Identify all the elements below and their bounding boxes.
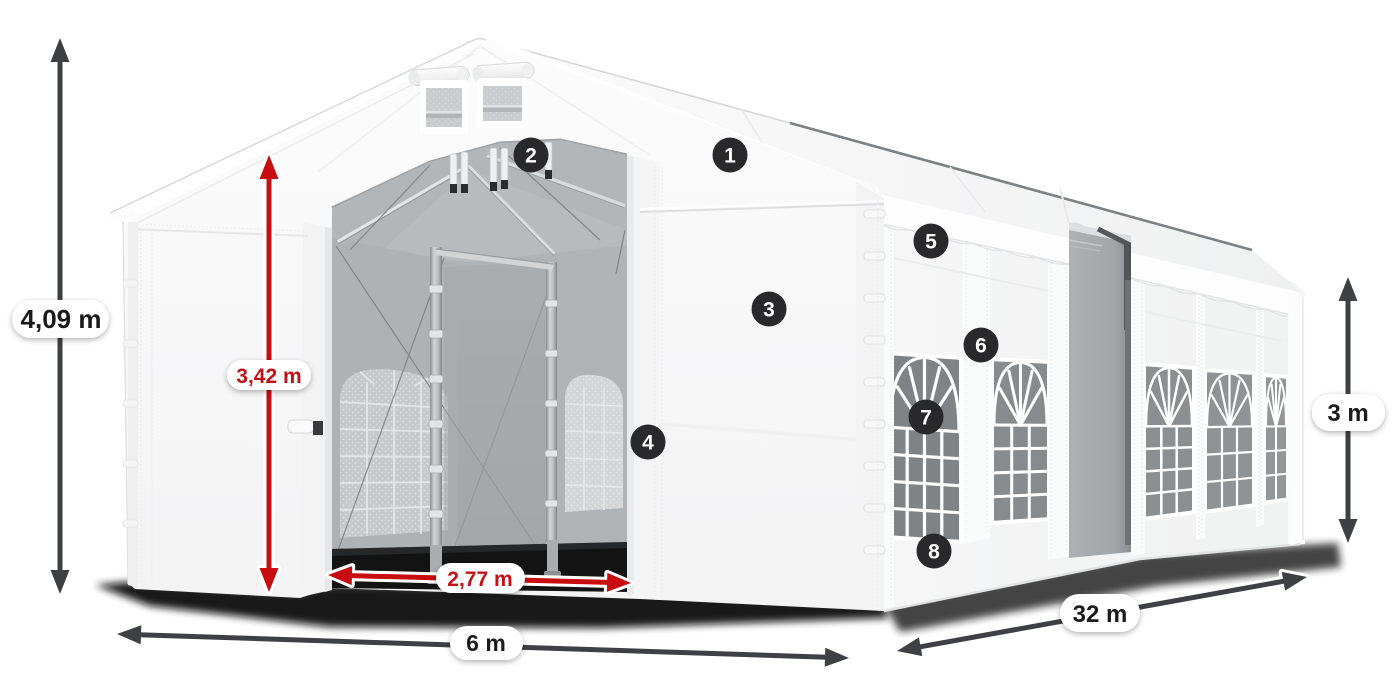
svg-text:3,42 m: 3,42 m <box>236 365 301 388</box>
svg-text:1: 1 <box>724 145 736 168</box>
svg-text:4: 4 <box>642 432 654 455</box>
svg-text:5: 5 <box>925 231 937 254</box>
svg-text:3: 3 <box>763 299 775 322</box>
svg-text:6 m: 6 m <box>466 630 506 656</box>
svg-text:8: 8 <box>928 541 940 564</box>
svg-text:32 m: 32 m <box>1073 601 1128 628</box>
svg-text:3 m: 3 m <box>1327 400 1368 427</box>
svg-text:2: 2 <box>525 145 537 168</box>
svg-text:2,77 m: 2,77 m <box>447 568 512 591</box>
svg-text:6: 6 <box>975 335 987 358</box>
svg-text:4,09 m: 4,09 m <box>21 304 102 334</box>
svg-text:7: 7 <box>920 407 932 430</box>
